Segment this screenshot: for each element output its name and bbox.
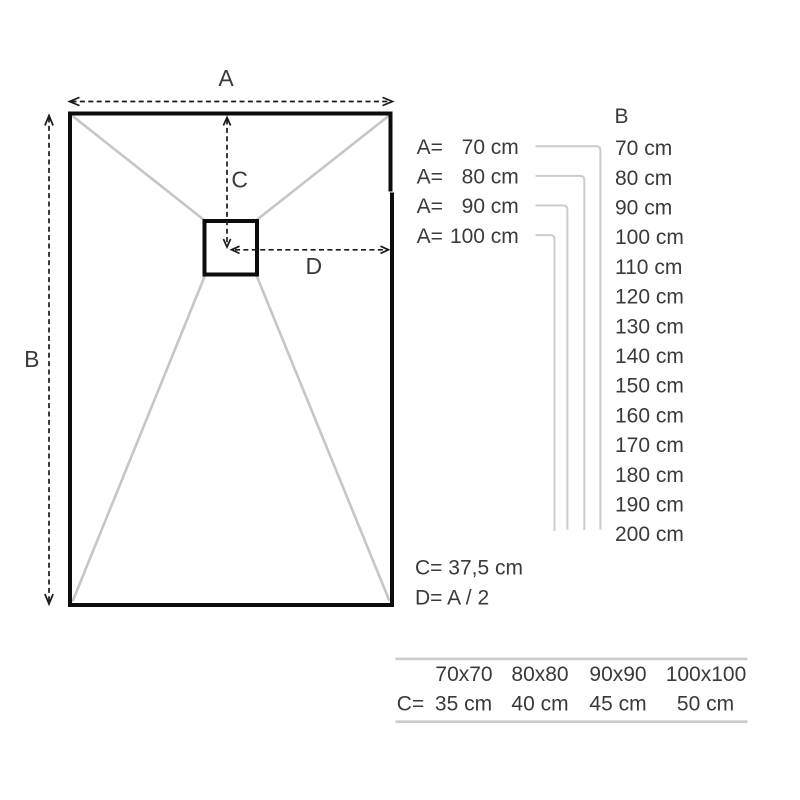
svg-text:cm: cm (491, 136, 519, 159)
svg-text:180 cm: 180 cm (615, 464, 684, 487)
svg-text:190 cm: 190 cm (615, 494, 684, 517)
svg-text:100: 100 (450, 225, 485, 248)
svg-text:90x90: 90x90 (589, 663, 646, 686)
svg-text:70x70: 70x70 (435, 663, 492, 686)
svg-text:D: D (305, 253, 322, 279)
svg-text:130 cm: 130 cm (615, 315, 684, 338)
svg-text:C: C (231, 167, 248, 193)
svg-text:90: 90 (462, 195, 485, 218)
svg-text:100x100: 100x100 (666, 663, 747, 686)
svg-text:B: B (24, 346, 39, 372)
svg-text:170 cm: 170 cm (615, 434, 684, 457)
svg-text:cm: cm (491, 195, 519, 218)
svg-text:80 cm: 80 cm (615, 167, 672, 190)
svg-text:160 cm: 160 cm (615, 404, 684, 427)
svg-text:B: B (615, 105, 629, 128)
svg-text:A=: A= (417, 136, 443, 159)
svg-text:C= 37,5 cm: C= 37,5 cm (415, 557, 523, 580)
svg-text:A: A (218, 65, 234, 91)
svg-text:A=: A= (417, 195, 443, 218)
svg-text:110 cm: 110 cm (615, 256, 682, 279)
svg-text:150 cm: 150 cm (615, 375, 684, 398)
svg-text:50 cm: 50 cm (677, 693, 734, 716)
svg-text:100 cm: 100 cm (615, 226, 684, 249)
svg-text:35 cm: 35 cm (435, 693, 492, 716)
svg-text:70 cm: 70 cm (615, 137, 672, 160)
svg-text:70: 70 (462, 136, 485, 159)
svg-text:90 cm: 90 cm (615, 197, 672, 220)
svg-text:cm: cm (491, 166, 519, 189)
svg-text:A=: A= (417, 225, 443, 248)
svg-text:45 cm: 45 cm (589, 693, 646, 716)
svg-text:D= A / 2: D= A / 2 (415, 587, 489, 610)
svg-text:140 cm: 140 cm (615, 345, 684, 368)
svg-text:80x80: 80x80 (511, 663, 568, 686)
svg-text:cm: cm (491, 225, 519, 248)
svg-text:80: 80 (462, 166, 485, 189)
svg-text:200 cm: 200 cm (615, 523, 684, 546)
svg-text:40 cm: 40 cm (511, 693, 568, 716)
svg-text:A=: A= (417, 166, 443, 189)
svg-text:120 cm: 120 cm (615, 286, 684, 309)
svg-text:C=: C= (397, 693, 424, 716)
